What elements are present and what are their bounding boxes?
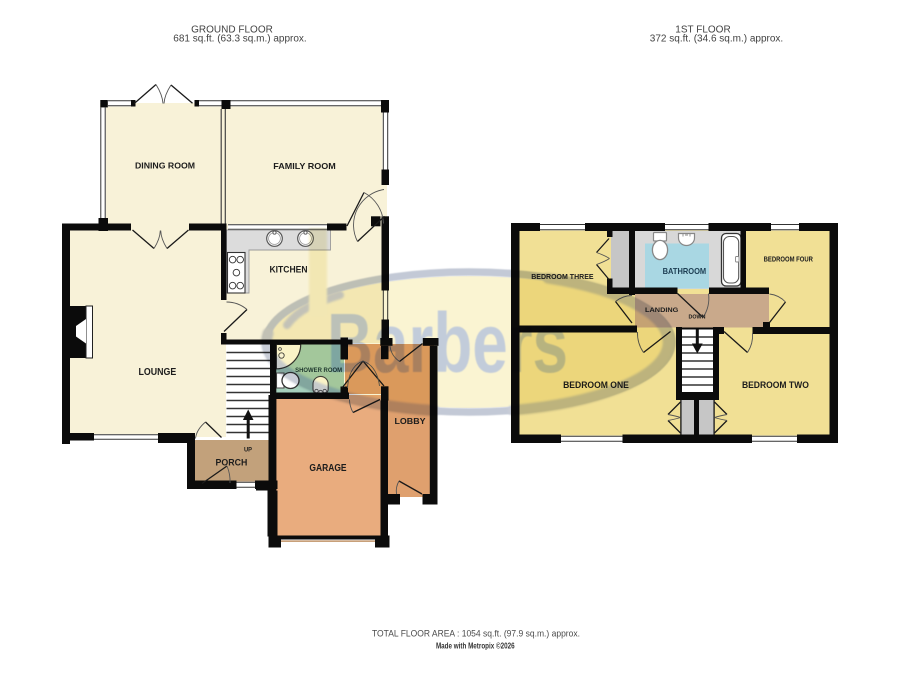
svg-text:Barbers: Barbers: [327, 296, 568, 390]
svg-text:PORCH: PORCH: [216, 457, 248, 467]
svg-text:UP: UP: [244, 447, 252, 453]
svg-text:BATHROOM: BATHROOM: [663, 266, 707, 276]
svg-text:GARAGE: GARAGE: [309, 463, 346, 474]
svg-text:TOTAL FLOOR AREA : 1054 sq.ft.: TOTAL FLOOR AREA : 1054 sq.ft. (97.9 sq.…: [372, 629, 580, 639]
svg-text:DOWN: DOWN: [689, 315, 706, 321]
svg-text:681 sq.ft. (63.3 sq.m.) approx: 681 sq.ft. (63.3 sq.m.) approx.: [173, 33, 306, 44]
svg-text:LOBBY: LOBBY: [395, 416, 426, 426]
svg-text:BEDROOM FOUR: BEDROOM FOUR: [764, 257, 813, 264]
svg-text:372 sq.ft. (34.6 sq.m.) approx: 372 sq.ft. (34.6 sq.m.) approx.: [650, 33, 783, 44]
svg-text:DINING ROOM: DINING ROOM: [135, 162, 195, 171]
svg-text:KITCHEN: KITCHEN: [270, 264, 308, 274]
svg-text:LOUNGE: LOUNGE: [139, 367, 177, 378]
svg-text:Made with Metropix ©2026: Made with Metropix ©2026: [436, 642, 515, 651]
svg-text:BEDROOM TWO: BEDROOM TWO: [742, 380, 809, 390]
svg-text:FAMILY ROOM: FAMILY ROOM: [273, 162, 336, 171]
